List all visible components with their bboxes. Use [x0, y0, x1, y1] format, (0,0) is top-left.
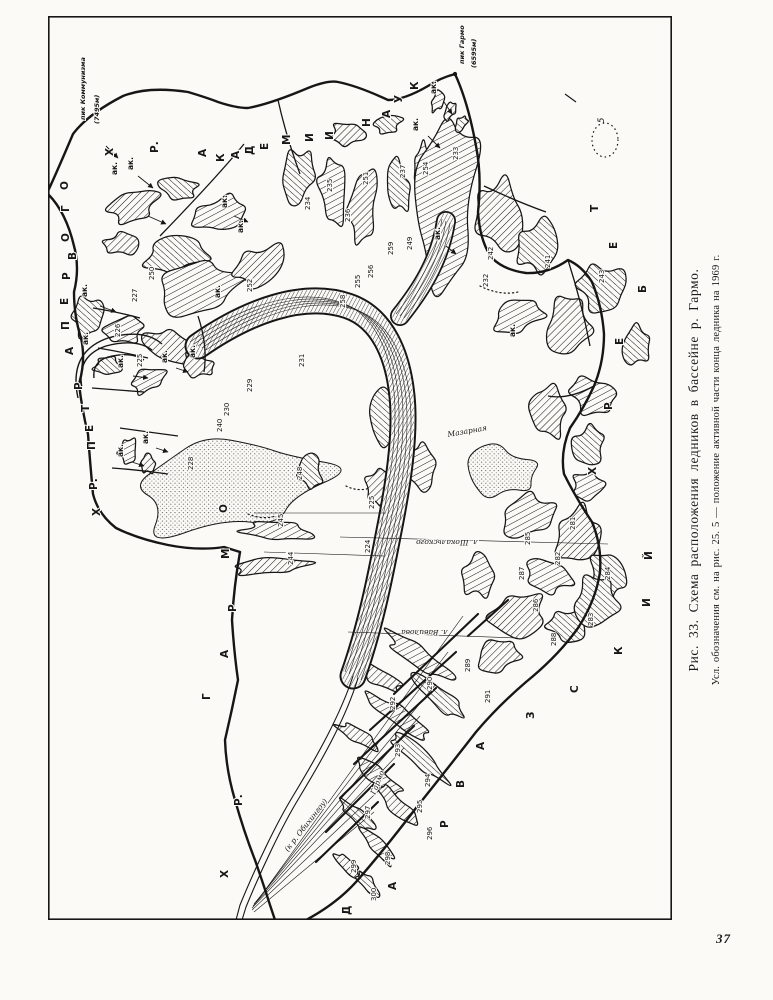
glacier-number: 225	[368, 496, 376, 509]
glacier-number: 254	[422, 161, 430, 175]
ridge-letter-khrebet-akademii-nauk: Х	[104, 148, 116, 156]
glacier-number: 252	[246, 279, 254, 292]
glacier-number: 228	[187, 457, 195, 470]
ridge-letter-darvazskiy-khrebet: Е	[614, 338, 626, 345]
glacier-number: 299	[350, 860, 358, 873]
ridge-letter-khrebet-akademii-nauk: И	[304, 133, 316, 142]
ak-label: ак.	[508, 324, 517, 337]
ridge-letter-khrebet-garmo: М	[220, 549, 232, 559]
ridge-letter-khrebet-petra-pervogo: О	[59, 181, 71, 190]
glacier-number: 225	[136, 354, 144, 367]
glacier-number: 236	[344, 208, 352, 222]
ridge-letter-darvazskiy-khrebet: Д	[341, 906, 353, 915]
figure-caption-rotated: Рис. 33. Схема расположения ледников в б…	[686, 18, 762, 922]
peak-dot	[453, 72, 457, 76]
ridge-letter-khrebet-petra-pervogo: Г	[60, 205, 72, 212]
ridge-letter-khrebet-petra-pervogo: О	[60, 233, 72, 242]
glacier-number: 292	[389, 697, 397, 710]
peak-elevation-label: (6595м)	[470, 39, 478, 68]
glacier-number: 258	[339, 295, 347, 308]
ridge-letter-darvazskiy-khrebet: З	[525, 712, 537, 719]
glacier-number: 291	[484, 690, 492, 703]
ridge-letter-darvazskiy-khrebet: Й	[642, 551, 655, 560]
glacier-number: 224	[364, 539, 372, 553]
glacier-number: 232	[482, 274, 490, 287]
glacier-number: 298	[384, 852, 392, 865]
ridge-letter-darvazskiy-khrebet: В	[455, 780, 467, 788]
glacier-number: 248	[296, 467, 304, 480]
ridge-letter-khrebet-garmo: А	[219, 649, 231, 658]
glacier-number: 241	[544, 255, 552, 268]
figure-caption-title: Рис. 33. Схема расположения ледников в б…	[686, 18, 702, 922]
glacier-number: 259	[387, 242, 395, 255]
glacier-number: 294	[424, 773, 432, 787]
place-name-label: л. Шокальского	[416, 538, 478, 547]
glacier-number: 288	[550, 633, 558, 646]
ridge-letter-khrebet-petra-pervogo: А	[64, 346, 76, 355]
ridge-letter-khrebet-akademii-nauk: А	[230, 150, 242, 159]
ridge-letter-khrebet-akademii-nauk: Д	[244, 146, 256, 155]
glacier-number: 282	[554, 552, 562, 565]
legend-number-label: 5	[597, 118, 607, 123]
ridge-letter-khrebet-petra-pervogo: В	[67, 252, 79, 260]
glacier-number: 229	[246, 379, 254, 392]
ridge-letter-khrebet-petra-pervogo: Р	[61, 272, 73, 280]
glacier-number: 234	[304, 196, 312, 210]
ridge-letter-khrebet-petra-pervogo: П	[60, 321, 72, 330]
ridge-letter-darvazskiy-khrebet: Р	[439, 820, 451, 828]
ak-label: ак.	[213, 285, 222, 298]
peak-name-label: пик Гармо	[458, 25, 466, 64]
glacier-number: 230	[223, 403, 231, 416]
ridge-letter-khrebet-akademii-nauk: Е	[259, 143, 271, 150]
glacier-number: 290	[426, 677, 434, 690]
glacier-number: 235	[326, 179, 334, 192]
glacier-number: 243	[598, 270, 606, 283]
ridge-letter-khrebet-petra-pervogo: Е	[84, 425, 96, 432]
ak-label: ак.	[429, 81, 438, 94]
ridge-letter-khrebet-petra-pervogo: Х	[91, 508, 103, 516]
ridge-letter-khrebet-garmo: Х	[219, 870, 231, 878]
ak-label: ак.	[110, 162, 119, 175]
ak-label: ак.	[188, 345, 197, 358]
ridge-letter-khrebet-akademii-nauk: К	[409, 81, 421, 90]
map-frame: 5ХР.АКАДЕМИИНАУКХР.ПЕТРАПЕРВОГОХР.ГАРМОД…	[48, 16, 672, 920]
ridge-letter-khrebet-petra-pervogo: П	[86, 441, 98, 450]
ridge-letter-khrebet-akademii-nauk: М	[281, 135, 293, 145]
glacier-number: 286	[532, 598, 540, 612]
ridge-letter-khrebet-petra-pervogo: Е	[59, 298, 71, 305]
glacier-number: 249	[406, 237, 414, 250]
ridge-letter-darvazskiy-khrebet: А	[475, 741, 487, 750]
ridge-letter-darvazskiy-khrebet: С	[569, 685, 581, 693]
ridge-letter-khrebet-garmo: О	[218, 504, 230, 513]
ak-label: ак.	[80, 284, 89, 297]
ridge-letter-khrebet-akademii-nauk: Н	[361, 118, 373, 127]
ridge-letter-khrebet-akademii-nauk: К	[215, 153, 227, 162]
page-number: 37	[716, 931, 731, 947]
glacier-number: 226	[114, 323, 122, 337]
ridge-letter-khrebet-petra-pervogo: Т	[80, 404, 92, 412]
glacier-number: 245	[277, 514, 285, 527]
ak-label: ак.	[220, 195, 229, 208]
ridge-letter-khrebet-akademii-nauk: И	[324, 131, 336, 140]
glacier-number: 293	[394, 744, 402, 757]
glacier-number: 296	[426, 826, 434, 840]
glacier-number: 283	[587, 613, 595, 626]
ridge-letter-darvazskiy-khrebet: К	[613, 646, 625, 655]
glacier-number: 227	[131, 289, 139, 302]
ridge-letter-khrebet-akademii-nauk: А	[381, 109, 393, 118]
ridge-letter-darvazskiy-khrebet: Р	[603, 402, 615, 410]
peak-elevation-label: (7495м)	[93, 95, 101, 124]
ridge-letter-darvazskiy-khrebet: Т	[589, 204, 601, 212]
ridge-letter-darvazskiy-khrebet: Б	[637, 285, 649, 293]
ridge-letter-darvazskiy-khrebet: Е	[608, 242, 620, 249]
ridge-letter-darvazskiy-khrebet: Х	[587, 467, 599, 475]
ridge-letter-khrebet-akademii-nauk: У	[393, 95, 405, 103]
book-page: { "page_number": "37", "caption": { "tit…	[0, 0, 773, 1000]
glacier-number: 237	[399, 165, 407, 178]
ak-label: ак.	[236, 220, 245, 233]
glacier-number: 242	[487, 247, 495, 260]
ridge-letter-darvazskiy-khrebet: А	[387, 881, 399, 890]
figure-caption-legend-note: Усл. обозначения см. на рис. 25. 5 — пол…	[711, 18, 722, 922]
glacier-number: 287	[518, 567, 526, 580]
ak-label: ак.	[160, 350, 169, 363]
ak-label: ак.	[81, 332, 90, 345]
figure-caption: Рис. 33. Схема расположения ледников в б…	[686, 18, 762, 922]
ridge-letter-khrebet-petra-pervogo: Р	[73, 382, 85, 390]
glacier-number: 240	[216, 419, 224, 432]
ridge-letter-khrebet-akademii-nauk: Р.	[149, 141, 161, 153]
ridge-letter-khrebet-petra-pervogo: Р.	[88, 478, 100, 490]
ridge-letter-khrebet-garmo: Г	[201, 693, 213, 700]
glacier-number: 244	[287, 551, 295, 565]
ak-label: ак.	[116, 444, 125, 457]
glacier-number: 256	[367, 264, 375, 278]
ak-label: ак.	[116, 355, 125, 368]
glacier-number: 231	[298, 354, 306, 367]
glacier-number: 300	[370, 888, 378, 901]
ak-label: ак.	[411, 118, 420, 131]
glacier-number: 250	[148, 267, 156, 280]
ak-label: ак.	[126, 157, 135, 170]
ak-label: ак.	[141, 431, 150, 444]
peak-name-label: пик Коммунизма	[79, 57, 87, 120]
glacier-number: 281	[569, 517, 577, 530]
glacier-number: 289	[464, 659, 472, 672]
glacier-number: 251	[362, 172, 370, 185]
glacier-number: 297	[364, 806, 372, 819]
glacier-number: 255	[354, 275, 362, 288]
glacier-number: 284	[604, 566, 612, 580]
glacier-map: 5ХР.АКАДЕМИИНАУКХР.ПЕТРАПЕРВОГОХР.ГАРМОД…	[48, 16, 672, 920]
ridge-letter-khrebet-garmo: Р	[227, 604, 239, 612]
ridge-letter-khrebet-garmo: Р.	[233, 794, 245, 806]
ridge-letter-darvazskiy-khrebet: И	[641, 598, 653, 607]
ak-label: ак.	[433, 227, 442, 240]
ridge-letter-khrebet-akademii-nauk: А	[197, 148, 209, 157]
glacier-number: 285	[524, 532, 532, 545]
glacier-number: 233	[452, 147, 460, 160]
glacier-number: 295	[416, 800, 424, 813]
place-name-label: л. Вавилова	[401, 628, 448, 637]
